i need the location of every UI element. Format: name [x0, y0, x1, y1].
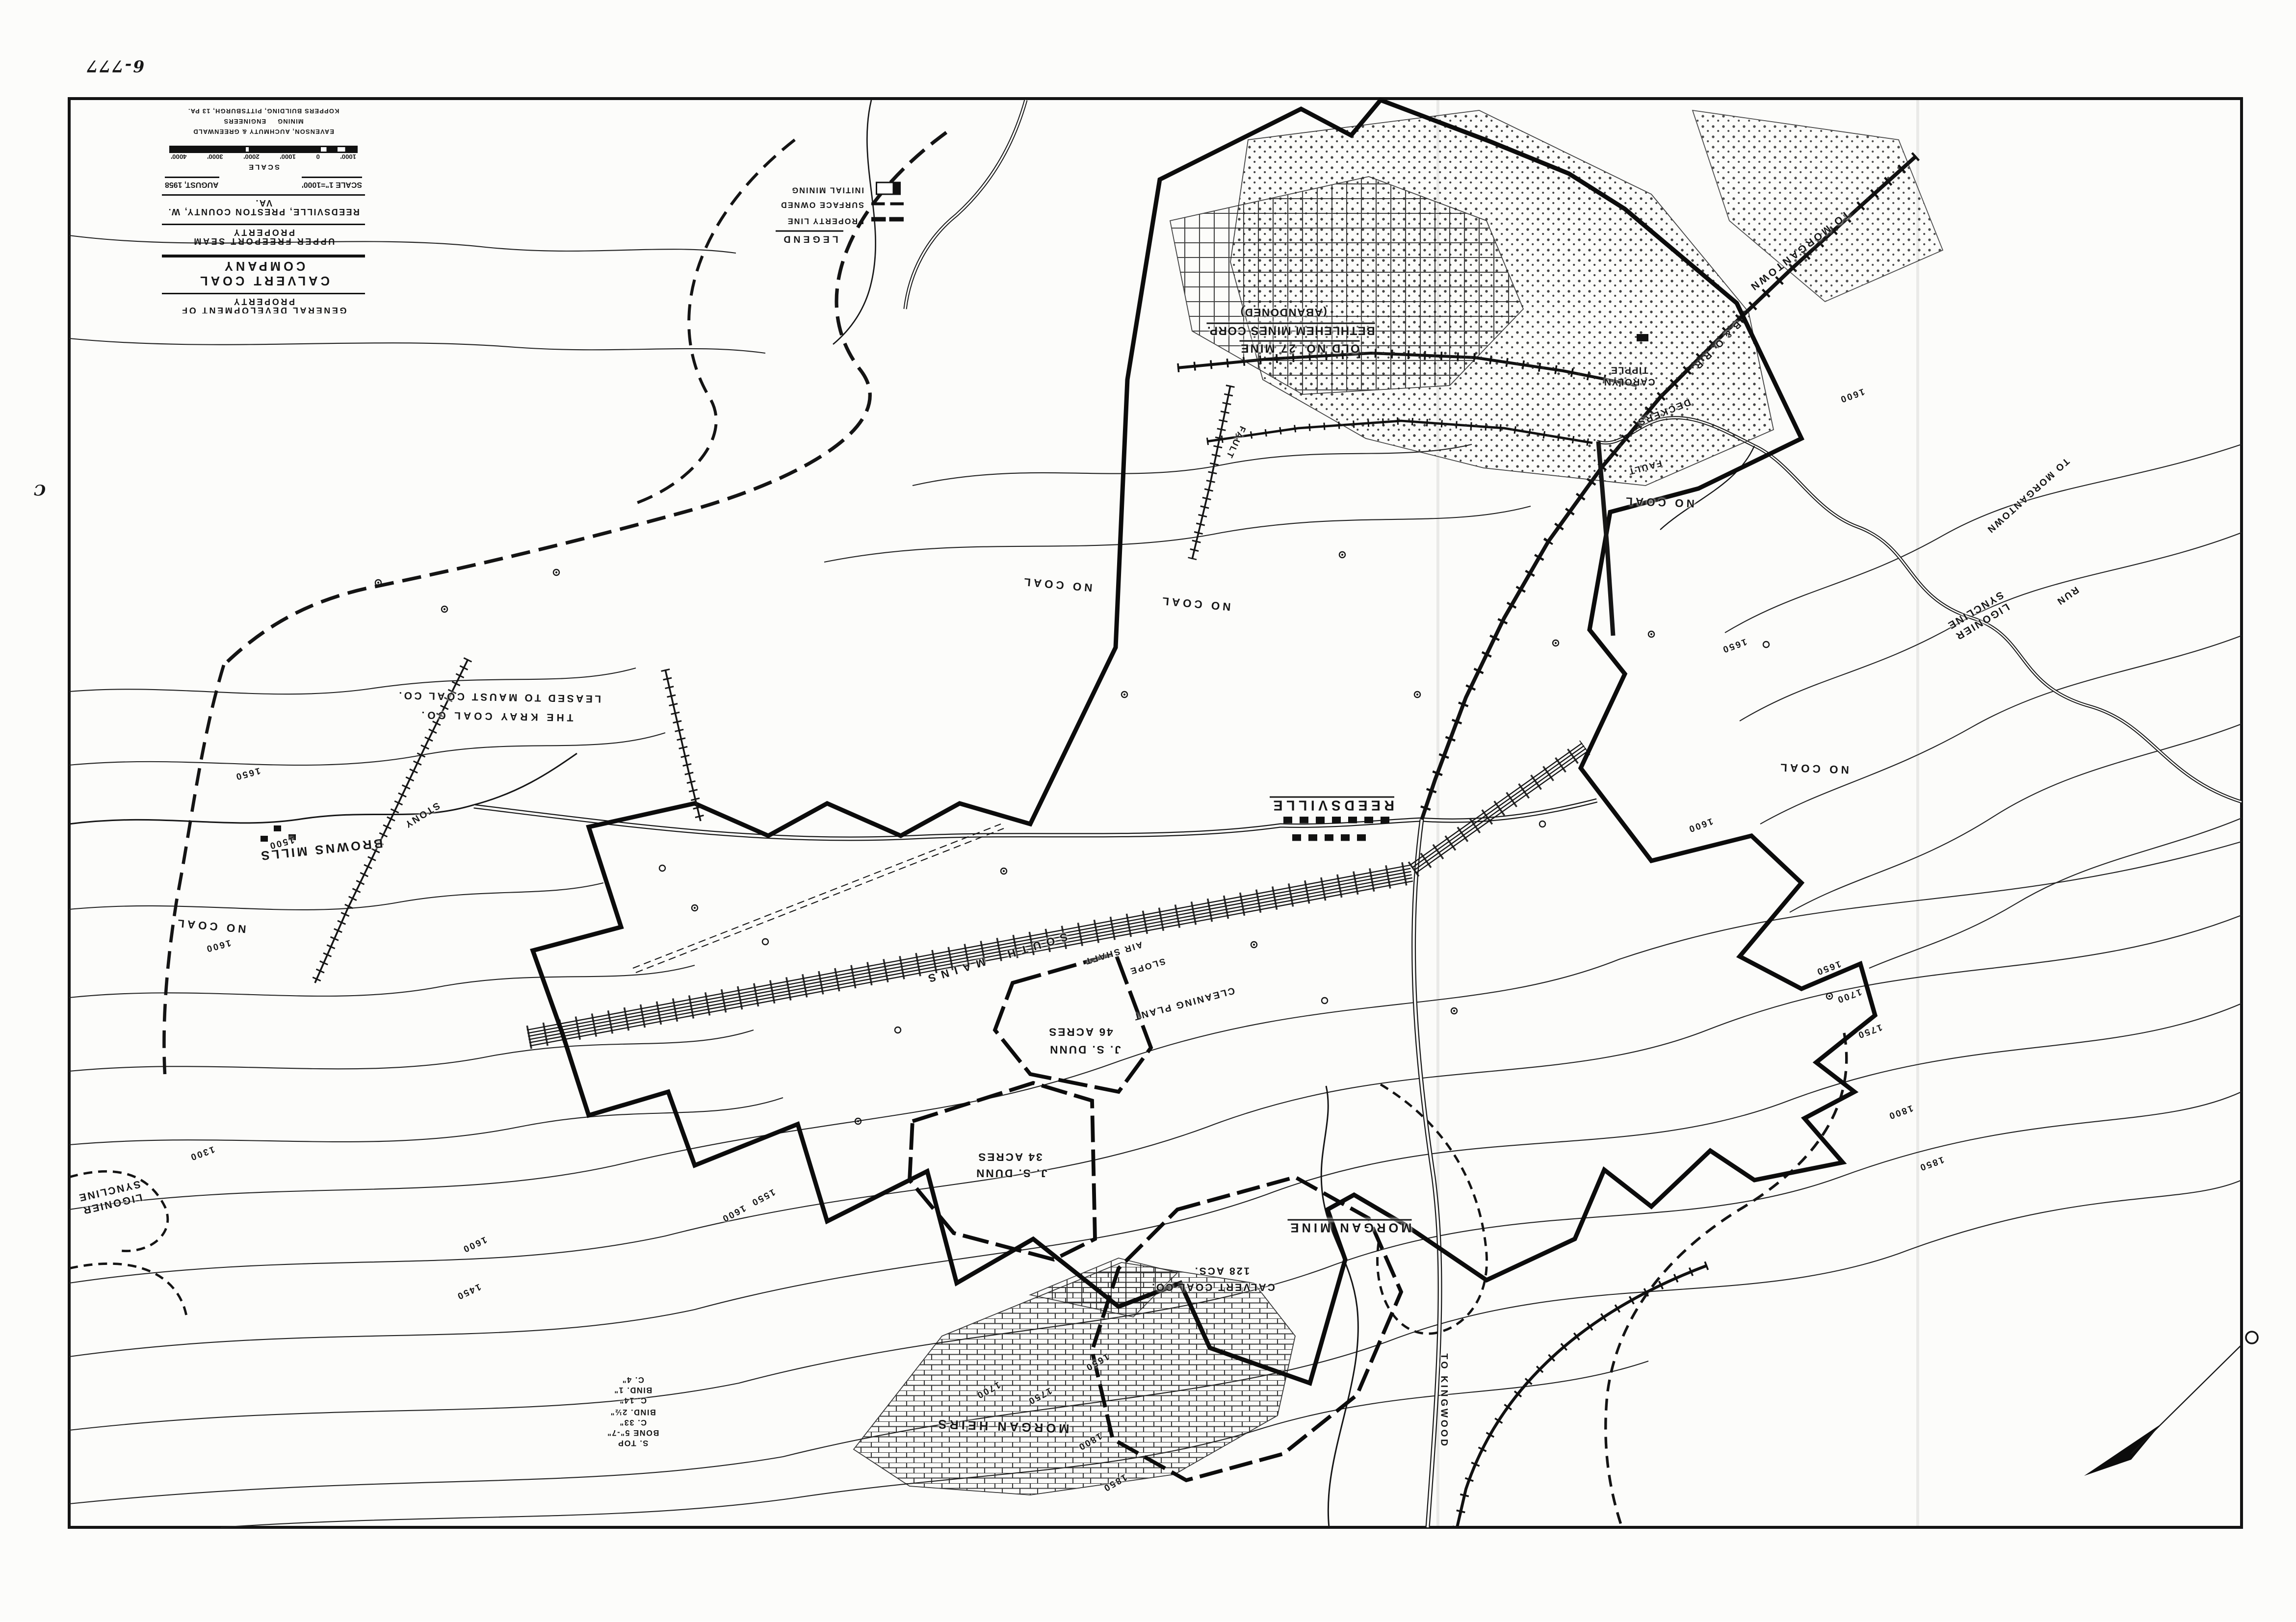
contour-1700-b: 1700 [1834, 985, 1863, 1005]
label-run: RUN [2053, 582, 2081, 607]
label-ligonier-syncline-east: LIGONIER SYNCLINE [1944, 587, 2012, 643]
label-slope: SLOPE [1127, 953, 1166, 975]
label-kray-leased: LEASED TO MAUST COAL CO. [397, 688, 601, 705]
margin-mark: C [34, 479, 46, 498]
label-kray-coal: THE KRAY COAL CO. [418, 707, 574, 723]
label-bo-railroad: B.& O. R.R. [1687, 317, 1742, 374]
contour-1750-a: 1750 [1025, 1384, 1053, 1406]
label-bethlehem-mines: BETHLEHEM MINES CORP. [1206, 322, 1375, 337]
contour-1550: 1550 [748, 1185, 777, 1208]
label-cleaning-plant: CLEANING PLANT [1131, 982, 1236, 1022]
contour-1600-a: 1600 [1837, 385, 1866, 405]
contour-1800-a: 1800 [1075, 1429, 1103, 1452]
label-air-shaft: AIR SHAFT [1082, 936, 1143, 965]
label-dunn34-name: J. S. DUNN [975, 1165, 1047, 1180]
label-no-coal-4: NO COAL [174, 915, 247, 936]
label-fault-2: FAULT [1221, 423, 1246, 460]
contour-1600-c: 1600 [460, 1233, 489, 1254]
contour-1300: 1300 [187, 1142, 216, 1162]
contour-1700-a: 1700 [973, 1378, 1002, 1400]
label-abandoned: (ABANDONED) [1240, 305, 1327, 319]
contour-1850-a: 1850 [1100, 1470, 1128, 1493]
label-dunn46-acres: 46 ACRES [1047, 1024, 1113, 1038]
label-no-coal-3: NO COAL [1623, 493, 1695, 510]
contour-1650-d: 1650 [1814, 957, 1842, 977]
contour-1600-b: 1600 [204, 935, 232, 953]
label-morgan-heirs: MORGAN HEIRS [935, 1416, 1070, 1437]
label-no-coal-5: NO COAL [1777, 760, 1850, 776]
label-old-no-27-mine: OLD NO. 27 MINE [1239, 339, 1359, 355]
label-morgan-mine: MORGAN MINE [1287, 1219, 1411, 1235]
contour-1650-a: 1650 [1720, 635, 1748, 655]
label-fault-1: FAULT [1625, 455, 1662, 475]
contour-1600-d: 1600 [719, 1201, 747, 1224]
contour-1450: 1450 [454, 1280, 483, 1301]
contour-1750-b: 1750 [1855, 1020, 1883, 1040]
map-labels-layer: 6-777C(ABANDONED)BETHLEHEM MINES CORP.OL… [0, 0, 2296, 1622]
label-reedsville: REEDSVILLE [1270, 794, 1394, 812]
contour-1650-b: 1650 [233, 763, 261, 781]
label-drill-section: S. TOP BONE 5"-7" C. 33" BIND. 2½" C. 14… [607, 1373, 659, 1446]
label-south-mains: SOUTH MAINS [921, 929, 1070, 987]
label-stony-run: STONY [401, 798, 442, 830]
contour-1600-e: 1600 [1686, 814, 1714, 834]
label-deckers-creek: DECKERS [1634, 394, 1692, 427]
label-carolyn-tipple: CAROLYN TIPPLE [1603, 361, 1655, 386]
label-dunn34-acres: 34 ACRES [977, 1149, 1042, 1163]
label-to-morgantown-1: TO MORGANTOWN [1746, 207, 1852, 294]
label-calvert-128: CALVERT COAL CO. [1150, 1279, 1275, 1292]
contour-1800-b: 1800 [1886, 1101, 1914, 1121]
label-to-morgantown-2: TO MORGANTOWN [1983, 454, 2071, 535]
label-no-coal-1: NO COAL [1020, 574, 1093, 594]
contour-1650-c: 1650 [1082, 1349, 1111, 1373]
label-to-kingwood: TO KINGWOOD [1436, 1353, 1448, 1448]
sheet-number: 6-777 [85, 54, 145, 76]
label-no-coal-2: NO COAL [1159, 593, 1231, 614]
paper-sheet: GENERAL DEVELOPMENT OF PROPERTY CALVERT … [0, 0, 2296, 1622]
label-ligonier-syncline-west: LIGONIER SYNCLINE [76, 1176, 144, 1216]
label-calvert-128-acres: 128 ACS. [1194, 1263, 1250, 1276]
label-dunn46-name: J. S. DUNN [1048, 1042, 1121, 1056]
contour-1850-b: 1850 [1917, 1153, 1945, 1173]
scanned-mine-map-sheet: GENERAL DEVELOPMENT OF PROPERTY CALVERT … [0, 0, 2296, 1622]
